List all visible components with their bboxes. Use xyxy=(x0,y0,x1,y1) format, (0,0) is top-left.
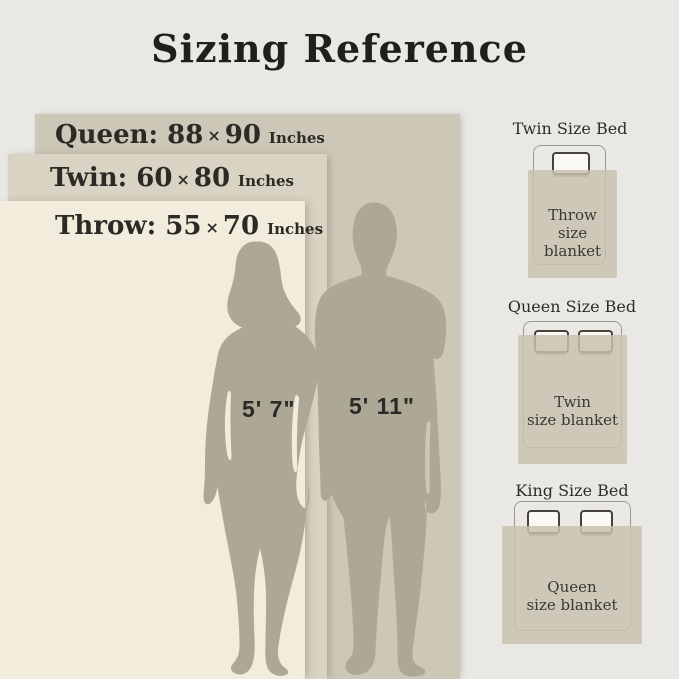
queen-blanket-overlay: Queen size blanket xyxy=(502,526,642,644)
man-height-label: 5' 11" xyxy=(349,393,415,420)
multiply-icon: × xyxy=(176,170,189,189)
page-title: Sizing Reference xyxy=(0,26,679,71)
blanket-label-line1: Twin xyxy=(527,393,618,411)
blanket-label-line1: Throw xyxy=(528,206,617,224)
woman-silhouette xyxy=(203,242,318,676)
sizing-reference-infographic: Sizing Reference Queen: 88 × 90 Inches T… xyxy=(0,0,679,679)
twin-label-height: 80 xyxy=(194,163,230,193)
throw-label-height: 70 xyxy=(223,211,259,241)
blanket-label-line2: size blanket xyxy=(528,224,617,260)
multiply-icon: × xyxy=(205,218,218,237)
twin-blanket-label: Twin size blanket xyxy=(527,393,618,429)
twin-bed-title: Twin Size Bed xyxy=(470,119,670,138)
queen-blanket-label: Queen size blanket xyxy=(526,578,617,614)
blanket-label-line2: size blanket xyxy=(526,596,617,614)
twin-label-unit: Inches xyxy=(238,172,294,190)
blanket-label-line1: Queen xyxy=(526,578,617,596)
queen-size-label: Queen: 88 × 90 Inches xyxy=(55,114,325,155)
throw-label-name: Throw: xyxy=(55,211,156,241)
twin-size-label: Twin: 60 × 80 Inches xyxy=(50,155,294,201)
twin-label-name: Twin: xyxy=(50,163,127,193)
king-bed-title: King Size Bed xyxy=(472,481,672,500)
throw-label-width: 55 xyxy=(165,211,201,241)
blanket-label-line2: size blanket xyxy=(527,411,618,429)
throw-blanket-overlay: Throw size blanket xyxy=(528,170,617,278)
throw-size-label: Throw: 55 × 70 Inches xyxy=(55,203,323,249)
woman-height-label: 5' 7" xyxy=(242,396,295,423)
throw-blanket-label: Throw size blanket xyxy=(528,206,617,260)
queen-label-unit: Inches xyxy=(269,129,325,147)
scale-figures xyxy=(180,195,470,679)
throw-label-unit: Inches xyxy=(267,220,323,238)
twin-blanket-overlay: Twin size blanket xyxy=(518,335,627,464)
twin-label-width: 60 xyxy=(136,163,172,193)
man-silhouette xyxy=(315,203,446,677)
queen-bed-title: Queen Size Bed xyxy=(472,297,672,316)
queen-label-height: 90 xyxy=(225,120,261,150)
queen-label-width: 88 xyxy=(167,120,203,150)
queen-label-name: Queen: xyxy=(55,120,158,150)
multiply-icon: × xyxy=(207,126,220,145)
